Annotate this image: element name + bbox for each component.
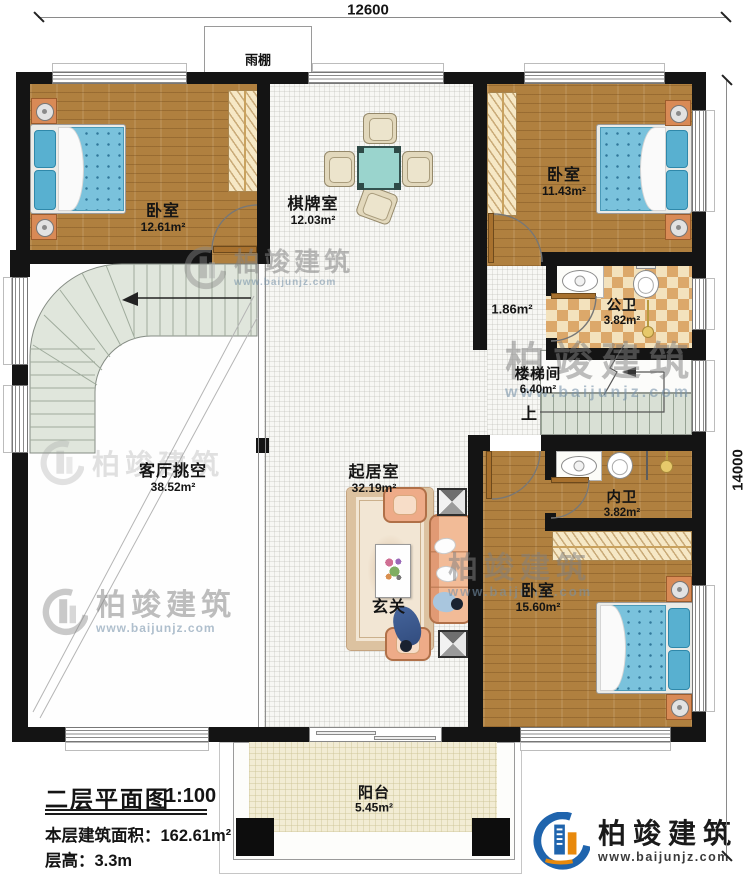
dimension-height: 14000 (730, 449, 747, 491)
window-sill (706, 585, 715, 712)
wardrobe (228, 90, 260, 192)
window (12, 385, 28, 453)
window-sill (706, 360, 715, 432)
wall-segment (442, 727, 520, 742)
pillow (666, 130, 688, 168)
nightstand (665, 214, 691, 240)
balcony-column-right (472, 818, 510, 856)
wall-segment (209, 727, 309, 742)
wardrobe (487, 92, 517, 216)
floor-height-text: 层高：3.3m (45, 847, 132, 871)
pillow (666, 170, 688, 210)
wall-segment (545, 451, 556, 480)
stair-up-label: 上 (521, 400, 537, 424)
shower-head (660, 460, 673, 473)
balcony-sliding-door (309, 727, 442, 742)
shower-stem (647, 300, 649, 328)
door (551, 293, 596, 299)
person-head (400, 640, 412, 652)
window (692, 278, 706, 330)
wall-segment (546, 338, 557, 348)
room-label-bedroom-br: 卧室15.60m² (516, 583, 561, 615)
room-label-public-bath: 公卫3.82m² (604, 298, 640, 328)
window-sill (312, 63, 444, 72)
wall-segment (541, 252, 692, 266)
window-sill (520, 742, 671, 751)
window-sill (3, 277, 12, 365)
window (692, 585, 706, 712)
corridor-floor (487, 266, 546, 435)
brand-name: 柏竣建筑 (598, 818, 738, 850)
wall-segment (692, 330, 706, 360)
window (692, 360, 706, 432)
wall-segment (692, 72, 706, 110)
room-label-bedroom-tl: 卧室12.61m² (141, 203, 186, 235)
window (52, 72, 187, 84)
wall-segment (468, 435, 483, 727)
room-label-bedroom-tr: 卧室11.43m² (542, 167, 586, 199)
window-sill (52, 63, 187, 72)
window (12, 277, 28, 365)
door (486, 451, 492, 499)
window (520, 727, 671, 742)
chair (402, 151, 433, 187)
floor-plan-canvas: 雨棚 (0, 0, 750, 889)
wall-segment (257, 84, 270, 264)
nightstand (666, 576, 692, 602)
side-table (437, 488, 467, 516)
coffee-table (375, 544, 411, 598)
living-void-floor (30, 264, 264, 727)
pillow (34, 170, 56, 210)
room-label-balcony: 阳台5.45m² (355, 784, 393, 815)
dimension-width: 12600 (347, 2, 389, 19)
bed-sheet (640, 127, 666, 211)
window-sill (706, 278, 715, 330)
wall-segment (16, 250, 212, 264)
wall-segment (12, 365, 28, 385)
window-sill (524, 63, 665, 72)
wardrobe (552, 531, 692, 561)
wall-segment (546, 266, 557, 296)
title-underline (45, 809, 207, 815)
room-label-stairwell: 楼梯间6.40m² (515, 367, 562, 397)
wall-segment (14, 727, 65, 742)
wall-segment (692, 212, 706, 278)
stair-treads (540, 393, 692, 435)
sink (562, 270, 598, 292)
dimension-line-right (726, 80, 727, 856)
pillow (668, 650, 690, 690)
toilet (607, 452, 633, 479)
room-label-game-room: 棋牌室12.03m² (287, 196, 338, 228)
balcony-column-left (236, 818, 274, 856)
wall-segment (187, 72, 308, 84)
nightstand (31, 98, 57, 124)
brand-logo-icon (532, 812, 590, 870)
brand-website: www.baijunjz.com (598, 850, 738, 864)
window (692, 110, 706, 212)
nightstand (665, 100, 691, 126)
window (524, 72, 665, 84)
chair (363, 113, 397, 144)
window-sill (65, 742, 209, 751)
door (488, 213, 494, 263)
wall-segment (473, 84, 487, 350)
door (551, 477, 589, 483)
wall-segment (12, 453, 28, 742)
nightstand (666, 694, 692, 720)
wall-segment (541, 435, 692, 451)
shower-head (642, 326, 654, 338)
window (65, 727, 209, 742)
room-label-living-void: 客厅挑空38.52m² (139, 463, 207, 495)
room-label-living-room: 起居室32.19m² (348, 464, 399, 496)
card-table (357, 146, 401, 190)
brand-logo: 柏竣建筑 www.baijunjz.com (532, 812, 738, 870)
chair (324, 151, 355, 187)
toilet (633, 270, 659, 298)
floor-area-text: 本层建筑面积：162.61m² (45, 822, 231, 846)
room-label-corridor: 1.86m² (491, 303, 532, 318)
sink (561, 456, 597, 476)
nightstand (31, 214, 57, 240)
foyer-label: 玄关 (372, 593, 406, 617)
wall-segment (16, 72, 30, 250)
void-railing (258, 264, 266, 727)
window-sill (706, 110, 715, 212)
dimension-tick (721, 74, 732, 85)
person-head (451, 598, 463, 610)
wall-segment (546, 348, 692, 360)
plan-scale: 1:100 (165, 785, 216, 808)
wall-segment (444, 72, 524, 84)
door (213, 246, 257, 253)
room-label-private-bath: 内卫3.82m² (604, 490, 640, 520)
canopy-label: 雨棚 (245, 50, 271, 69)
wall-segment (692, 432, 706, 585)
window-sill (3, 385, 12, 453)
wall-segment (483, 435, 490, 451)
window (308, 72, 444, 84)
pillow (34, 130, 56, 168)
side-table (438, 630, 468, 658)
wall-segment (671, 727, 706, 742)
pillow (668, 608, 690, 648)
